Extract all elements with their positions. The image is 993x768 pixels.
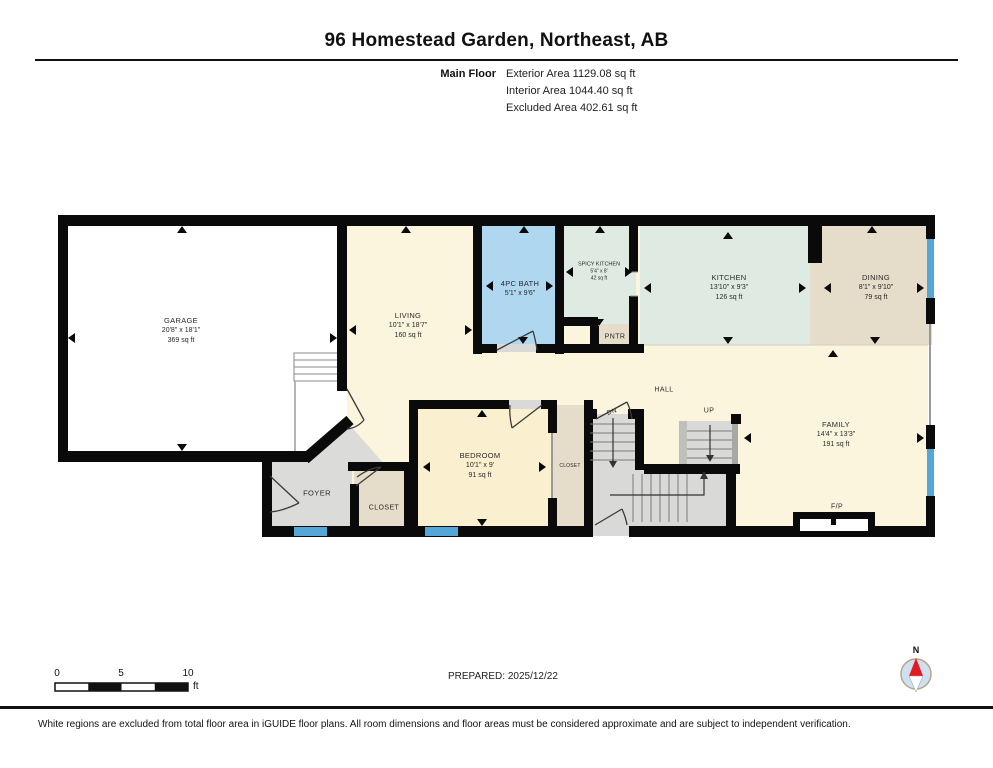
garage-floor bbox=[64, 220, 344, 460]
room-fills bbox=[64, 220, 932, 536]
entry-closet-floor bbox=[354, 466, 409, 532]
scale-bar bbox=[55, 683, 188, 691]
room-label-dining: DINING 8'1" x 9'10" 79 sq ft bbox=[859, 273, 894, 303]
floor-plan-svg bbox=[0, 0, 993, 768]
hall-label: HALL bbox=[654, 387, 673, 394]
disclaimer-text: White regions are excluded from total fl… bbox=[38, 719, 968, 730]
prepared-date: PREPARED: 2025/12/22 bbox=[448, 671, 558, 682]
footer-rule bbox=[0, 706, 993, 709]
scale-tick-5: 5 bbox=[118, 668, 124, 679]
pantry-label: PNTR bbox=[605, 334, 626, 341]
room-label-bedroom: BEDROOM 10'1" x 9' 91 sq ft bbox=[460, 451, 501, 481]
room-label-living: LIVING 10'1" x 18'7" 160 sq ft bbox=[389, 311, 427, 341]
room-label-spice-kitchen: SPICY KITCHEN 5'4" x 8' 42 sq ft bbox=[578, 262, 620, 283]
compass-north-label: N bbox=[913, 645, 920, 655]
foyer-window bbox=[294, 527, 327, 536]
room-label-garage: GARAGE 20'8" x 18'1" 369 sq ft bbox=[162, 316, 200, 346]
room-label-kitchen: KITCHEN 13'10" x 9'3" 126 sq ft bbox=[710, 273, 748, 303]
fireplace bbox=[793, 512, 875, 537]
scale-unit: ft bbox=[193, 681, 199, 692]
bedroom-window bbox=[425, 527, 458, 536]
foyer-label: FOYER bbox=[303, 489, 331, 498]
compass bbox=[901, 658, 931, 692]
entry-closet-label: CLOSET bbox=[369, 505, 399, 512]
floorplan-page: 96 Homestead Garden, Northeast, AB Main … bbox=[0, 0, 993, 768]
up-label: UP bbox=[704, 408, 715, 415]
room-label-bath: 4PC BATH 5'1" x 9'6" bbox=[501, 279, 540, 299]
fireplace-label: F/P bbox=[831, 504, 843, 511]
scale-tick-10: 10 bbox=[182, 668, 193, 679]
bedroom-closet-label: CLOSET bbox=[559, 463, 580, 469]
dining-window bbox=[927, 239, 934, 298]
scale-tick-0: 0 bbox=[54, 668, 60, 679]
family-window bbox=[927, 449, 934, 496]
room-label-family: FAMILY 14'4" x 13'3" 191 sq ft bbox=[817, 420, 855, 450]
